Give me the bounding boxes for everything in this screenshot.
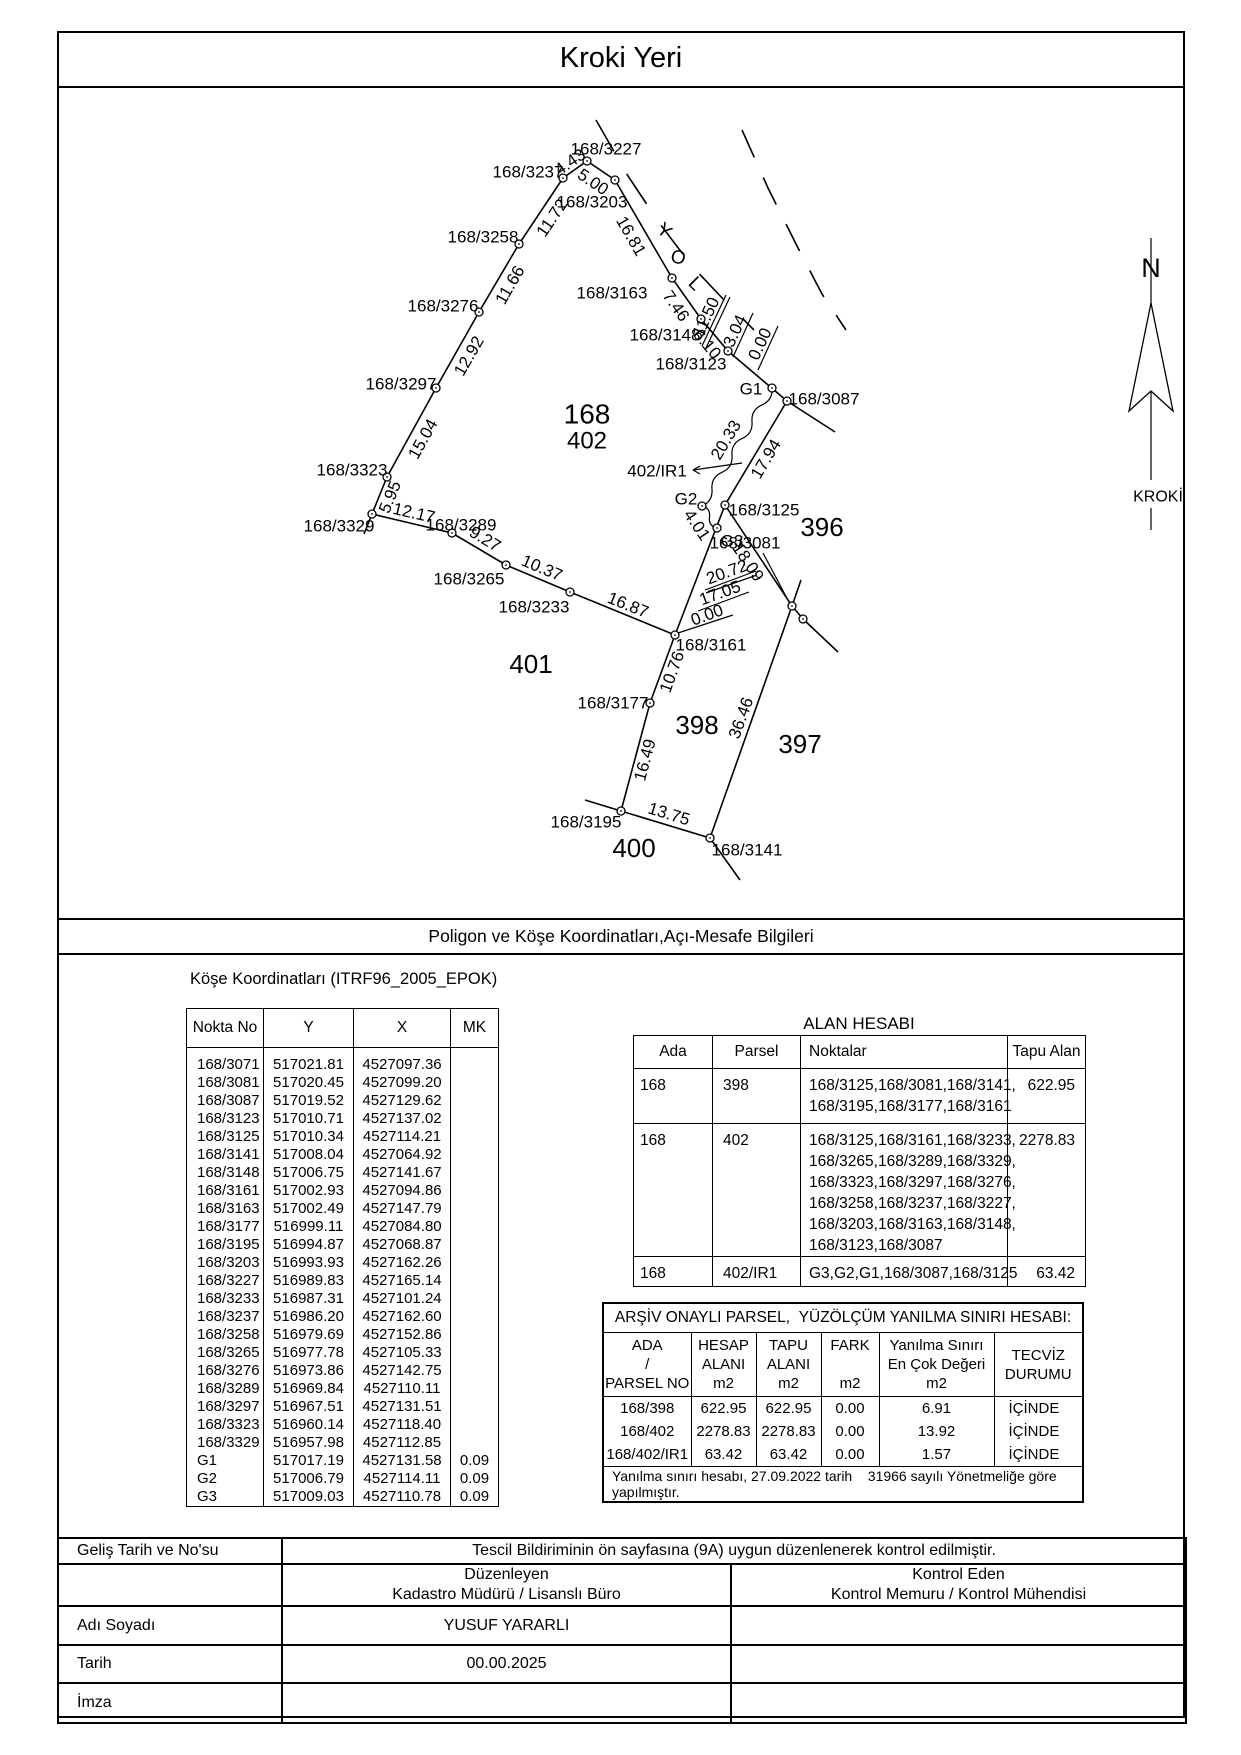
cell: 516986.20 [264,1308,354,1326]
cell: 4527118.40 [354,1416,451,1434]
cell: 517021.81 [264,1048,354,1075]
cell: 4527101.24 [354,1290,451,1308]
cell: 398 [713,1069,801,1124]
table-row: 168/3297516967.514527131.51 [187,1398,499,1416]
table-row: 168402168/3125,168/3161,168/3233,168/326… [634,1124,1086,1257]
cell: 4527064.92 [354,1146,451,1164]
boundary-extension [803,619,838,652]
imza-value [282,1683,731,1723]
coord-table-caption: Köşe Koordinatları (ITRF96_2005_EPOK) [190,970,497,989]
cell: 4527142.75 [354,1362,451,1380]
cell [451,1326,499,1344]
duzenleyen-line2: Kadastro Müdürü / Lisanslı Büro [283,1585,730,1605]
point-label: 168/3258 [448,228,519,247]
kontrol-line2: Kontrol Memuru / Kontrol Mühendisi [732,1585,1185,1605]
cell: 516973.86 [264,1362,354,1380]
cell: 4527131.51 [354,1398,451,1416]
col-noktalar: Noktalar [801,1036,1008,1069]
road-label-letter: O [668,246,688,270]
distance-label: 0.00 [688,600,726,629]
table-row: İmza [58,1683,1186,1723]
distance-label: 16.87 [605,588,652,622]
col-mk: MK [451,1009,499,1048]
cell: 0.09 [451,1452,499,1470]
survey-point-center [709,837,711,839]
table-row: 168/3227516989.834527165.14 [187,1272,499,1290]
cell: 402/IR1 [713,1257,801,1287]
cell: 168/3087 [187,1092,264,1110]
cell: 63.42 [756,1443,821,1467]
cell: 517006.79 [264,1470,354,1488]
parcel-number-label: 401 [509,649,552,679]
cell [451,1398,499,1416]
distance-label: 0.00 [744,325,775,363]
cell: 168/3329 [187,1434,264,1452]
signature-table: Geliş Tarih ve No'su Tescil Bildiriminin… [57,1537,1187,1724]
cell: 168/3203 [187,1254,264,1272]
cell: 168/3148 [187,1164,264,1182]
table-row: 168/398622.95622.950.006.91İÇİNDE [603,1397,1083,1421]
cell: 517017.19 [264,1452,354,1470]
cell: 0.00 [821,1443,879,1467]
alan-hesabi-header: Ada Parsel Noktalar Tapu Alan [634,1036,1086,1069]
column-header: Yanılma SınırıEn Çok Değerim2 [879,1333,994,1397]
distance-label: 3.04 [719,312,750,350]
adi-soyadi-label: Adı Soyadı [58,1606,282,1645]
cell: 13.92 [879,1420,994,1443]
label-leader-line [763,553,789,602]
table-row: 168/3081517020.454527099.20 [187,1074,499,1092]
table-row: 168/3141517008.044527064.92 [187,1146,499,1164]
table-row: 168/402/IR163.4263.420.001.57İÇİNDE [603,1443,1083,1467]
cell [451,1128,499,1146]
table-row: G2517006.794527114.110.09 [187,1470,499,1488]
parcel-number-label: 396 [800,512,843,542]
cell: G2 [187,1470,264,1488]
table-row: 168/3237516986.204527162.60 [187,1308,499,1326]
distance-label: 7.46 [659,287,694,325]
point-label: 168/3087 [789,390,860,409]
cell [451,1272,499,1290]
cell: 168/402 [603,1420,691,1443]
table-row: 168/3323516960.144527118.40 [187,1416,499,1434]
cell: 4527105.33 [354,1344,451,1362]
cell: G3,G2,G1,168/3087,168/3125 [801,1257,1008,1287]
point-label: 168/3177 [578,694,649,713]
cell: 168 [634,1069,713,1124]
distance-label: 16.81 [612,213,650,259]
cell: 622.95 [691,1397,756,1421]
distance-label: 11.66 [491,262,528,307]
point-label: 168/3323 [317,461,388,480]
table-row: 168/3276516973.864527142.75 [187,1362,499,1380]
cell: 168/3265 [187,1344,264,1362]
cell: 4527084.80 [354,1218,451,1236]
point-label: 168/3297 [366,375,437,394]
cell: 4527110.78 [354,1488,451,1507]
cell [451,1416,499,1434]
table-row: 168/3125517010.344527114.21 [187,1128,499,1146]
parcel-boundary [372,514,675,635]
alan-hesabi-title: ALAN HESABI [633,1014,1085,1034]
table-row: 168/4022278.832278.830.0013.92İÇİNDE [603,1420,1083,1443]
table-row: 168/3123517010.714527137.02 [187,1110,499,1128]
cell: 4527114.11 [354,1470,451,1488]
cell: 517010.71 [264,1110,354,1128]
cell: 517020.45 [264,1074,354,1092]
cell: 4527099.20 [354,1074,451,1092]
empty-cell [731,1645,1186,1683]
cell: 516999.11 [264,1218,354,1236]
survey-point-center [716,527,718,529]
cell: 168/398 [603,1397,691,1421]
col-ada: Ada [634,1036,713,1069]
cell: 168/3323 [187,1416,264,1434]
cell: 168/3195 [187,1236,264,1254]
parcel-number-label: 398 [675,710,718,740]
point-label: 168/3125 [729,501,800,520]
column-header: FARKm2 [821,1333,879,1397]
north-label: N [1141,253,1161,283]
point-label: 168/3276 [408,297,479,316]
empty-cell [731,1683,1186,1723]
table-row: Tarih 00.00.2025 [58,1645,1186,1683]
survey-point-center [771,387,773,389]
point-label: G1 [740,380,763,399]
cell: 0.09 [451,1488,499,1507]
cell: 2278.83 [756,1420,821,1443]
cell: 168/3161 [187,1182,264,1200]
table-row: 168/3163517002.494527147.79 [187,1200,499,1218]
cell: 4527129.62 [354,1092,451,1110]
cell: 0.09 [451,1470,499,1488]
column-header: HESAPALANIm2 [691,1333,756,1397]
empty-cell [731,1606,1186,1645]
cell: 516960.14 [264,1416,354,1434]
table-row: 168402/IR1G3,G2,G1,168/3087,168/312563.4… [634,1257,1086,1287]
coordinate-table-header: Nokta No Y X MK [187,1009,499,1048]
cell [451,1308,499,1326]
cell: İÇİNDE [994,1397,1083,1421]
cadastral-sketch: 168/3227168/3237168/3203168/3258168/3163… [57,88,1185,918]
cell: 168/3289 [187,1380,264,1398]
cell: 516969.84 [264,1380,354,1398]
survey-point-center [671,277,673,279]
col-y: Y [264,1009,354,1048]
table-row: 168398168/3125,168/3081,168/3141,168/319… [634,1069,1086,1124]
col-x: X [354,1009,451,1048]
cell: 4527137.02 [354,1110,451,1128]
cell: 168/3125,168/3081,168/3141,168/3195,168/… [801,1069,1008,1124]
cell: 0.00 [821,1397,879,1421]
arsiv-header-row: ADA/PARSEL NOHESAPALANIm2TAPUALANIm2FARK… [603,1333,1083,1397]
cell: 0.00 [821,1420,879,1443]
cell: 517009.03 [264,1488,354,1507]
cell [451,1380,499,1398]
point-label: 168/3195 [551,813,622,832]
col-tapu-alan: Tapu Alan [1008,1036,1086,1069]
cell: 517002.93 [264,1182,354,1200]
distance-label: 12.92 [450,333,488,379]
parcel-number-label: 168 [564,399,611,430]
arsiv-footnote: Yanılma sınırı hesabı, 27.09.2022 tarih … [603,1467,1083,1503]
cell: 168/3276 [187,1362,264,1380]
survey-point-center [371,513,373,515]
gelis-tarih-value: Tescil Bildiriminin ön sayfasına (9A) uy… [282,1538,1186,1564]
cell: İÇİNDE [994,1443,1083,1467]
cell: 4527097.36 [354,1048,451,1075]
table-row: 168/3071517021.814527097.36 [187,1048,499,1075]
cell: 622.95 [756,1397,821,1421]
point-label: 168/3265 [434,570,505,589]
cell: 1.57 [879,1443,994,1467]
cell: 168/3123 [187,1110,264,1128]
cell: 63.42 [691,1443,756,1467]
distance-label: 11.72 [533,196,572,241]
table-row: 168/3289516969.844527110.11 [187,1380,499,1398]
cell: 168 [634,1257,713,1287]
arsiv-title-row: ARŞİV ONAYLI PARSEL, YÜZÖLÇÜM YANILMA SI… [603,1303,1083,1333]
distance-label: 15.04 [404,416,441,462]
cell [451,1290,499,1308]
cell: 517010.34 [264,1128,354,1146]
kroki-label: KROKİ [1133,487,1183,506]
column-header: ADA/PARSEL NO [603,1333,691,1397]
table-row: Düzenleyen Kadastro Müdürü / Lisanslı Bü… [58,1564,1186,1606]
cell: 516967.51 [264,1398,354,1416]
cell: 517006.75 [264,1164,354,1182]
table-row: 168/3148517006.754527141.67 [187,1164,499,1182]
cell: 516957.98 [264,1434,354,1452]
cell [451,1182,499,1200]
cell: 516977.78 [264,1344,354,1362]
cell: 168/3177 [187,1218,264,1236]
cell: 63.42 [1008,1257,1086,1287]
table-row: G3517009.034527110.780.09 [187,1488,499,1507]
cell: İÇİNDE [994,1420,1083,1443]
table-row: 168/3258516979.694527152.86 [187,1326,499,1344]
distance-label: 9.27 [466,522,504,555]
cell [451,1200,499,1218]
page-title: Kroki Yeri [560,42,683,75]
section-bar: Poligon ve Köşe Koordinatları,Açı-Mesafe… [57,918,1185,955]
duzenleyen-line1: Düzenleyen [283,1565,730,1585]
cell [451,1048,499,1075]
cell [451,1236,499,1254]
cell: 4527162.60 [354,1308,451,1326]
cell: 517019.52 [264,1092,354,1110]
cell: 4527112.85 [354,1434,451,1452]
cell: 516987.31 [264,1290,354,1308]
cell: 168/3071 [187,1048,264,1075]
cell [451,1344,499,1362]
cell: 168/3297 [187,1398,264,1416]
road-label-letter: L [684,273,706,295]
cell: 4527141.67 [354,1164,451,1182]
cell: 516993.93 [264,1254,354,1272]
cell: 4527162.26 [354,1254,451,1272]
duzenleyen-header: Düzenleyen Kadastro Müdürü / Lisanslı Bü… [282,1564,731,1606]
cell: 168/3258 [187,1326,264,1344]
survey-point-center [802,618,804,620]
kontrol-eden-header: Kontrol Eden Kontrol Memuru / Kontrol Mü… [731,1564,1186,1606]
arsiv-table: ARŞİV ONAYLI PARSEL, YÜZÖLÇÜM YANILMA SI… [602,1302,1084,1503]
cell: 6.91 [879,1397,994,1421]
cell: 4527147.79 [354,1200,451,1218]
cell: 4527114.21 [354,1128,451,1146]
cell [451,1254,499,1272]
cell: 517008.04 [264,1146,354,1164]
cell: G1 [187,1452,264,1470]
parcel-number-label: 400 [612,833,655,863]
adi-soyadi-value: YUSUF YARARLI [282,1606,731,1645]
table-row: 168/3195516994.874527068.87 [187,1236,499,1254]
empty-cell [58,1564,282,1606]
survey-point-center [505,564,507,566]
survey-point-center [701,505,703,507]
col-nokta-no: Nokta No [187,1009,264,1048]
cell: 516989.83 [264,1272,354,1290]
cell: 516979.69 [264,1326,354,1344]
table-row: 168/3203516993.934527162.26 [187,1254,499,1272]
cell: 2278.83 [691,1420,756,1443]
survey-point-center [724,504,726,506]
survey-point-center [649,702,651,704]
table-row: 168/3177516999.114527084.80 [187,1218,499,1236]
cell: 516994.87 [264,1236,354,1254]
road-edge-dashed [742,130,846,330]
section-title: Poligon ve Köşe Koordinatları,Açı-Mesafe… [428,926,813,947]
table-row: G1517017.194527131.580.09 [187,1452,499,1470]
table-row: 168/3233516987.314527101.24 [187,1290,499,1308]
cell: 168/402/IR1 [603,1443,691,1467]
gelis-tarih-label: Geliş Tarih ve No'su [58,1538,282,1564]
cell: 4527131.58 [354,1452,451,1470]
cell: 168/3233 [187,1290,264,1308]
label-leader-line [693,470,700,474]
table-row: 168/3265516977.784527105.33 [187,1344,499,1362]
parcel-number-label: 397 [778,729,821,759]
alan-hesabi-table: Ada Parsel Noktalar Tapu Alan 168398168/… [633,1035,1086,1287]
cell [451,1434,499,1452]
cell: 168/3125,168/3161,168/3233,168/3265,168/… [801,1124,1008,1257]
table-row: 168/3329516957.984527112.85 [187,1434,499,1452]
cell: 168/3141 [187,1146,264,1164]
distance-label: 16.49 [630,737,659,783]
cell: 402 [713,1124,801,1257]
parcel-number-label: 402 [567,428,607,455]
cell: 4527165.14 [354,1272,451,1290]
cell [451,1110,499,1128]
cell: 4527068.87 [354,1236,451,1254]
survey-point-center [614,179,616,181]
tarih-value: 00.00.2025 [282,1645,731,1683]
cell: 4527094.86 [354,1182,451,1200]
cell: 4527152.86 [354,1326,451,1344]
coordinate-table: Nokta No Y X MK 168/3071517021.814527097… [186,1008,499,1507]
cell: 622.95 [1008,1069,1086,1124]
document-page: Kroki Yeri 168/3227168/3237168/3203168/3… [0,0,1241,1755]
cell: 168 [634,1124,713,1257]
column-header: TAPUALANIm2 [756,1333,821,1397]
boundary-extension [585,800,621,811]
arsiv-title: ARŞİV ONAYLI PARSEL, YÜZÖLÇÜM YANILMA SI… [603,1303,1083,1333]
point-label: 402/IR1 [627,462,687,481]
point-label: 168/3161 [676,636,747,655]
point-label: G2 [675,490,698,509]
cell [451,1092,499,1110]
table-row: Geliş Tarih ve No'su Tescil Bildiriminin… [58,1538,1186,1564]
arsiv-footnote-row: Yanılma sınırı hesabı, 27.09.2022 tarih … [603,1467,1083,1503]
label-leader-line [693,463,742,470]
cell: 168/3125 [187,1128,264,1146]
point-label: 168/3163 [577,284,648,303]
point-label: 168/3233 [499,598,570,617]
cell [451,1362,499,1380]
imza-label: İmza [58,1683,282,1723]
table-row: 168/3087517019.524527129.62 [187,1092,499,1110]
cell: 168/3081 [187,1074,264,1092]
cell [451,1164,499,1182]
point-label: 168/3141 [712,841,783,860]
table-row: Adı Soyadı YUSUF YARARLI [58,1606,1186,1645]
survey-point-center [791,605,793,607]
point-label: 168/3329 [304,517,375,536]
tarih-label: Tarih [58,1645,282,1683]
survey-point-center [569,591,571,593]
survey-point-center [727,350,729,352]
table-row: 168/3161517002.934527094.86 [187,1182,499,1200]
distance-label: 11.50 [689,294,724,339]
cell [451,1146,499,1164]
distance-label: 13.75 [646,799,692,830]
title-bar: Kroki Yeri [57,31,1185,88]
cell: 168/3163 [187,1200,264,1218]
cell: 517002.49 [264,1200,354,1218]
cell: 4527110.11 [354,1380,451,1398]
cell: G3 [187,1488,264,1507]
kontrol-line1: Kontrol Eden [732,1565,1185,1585]
col-parsel: Parsel [713,1036,801,1069]
cell: 168/3227 [187,1272,264,1290]
column-header: TECVİZDURUMU [994,1333,1083,1397]
cell: 168/3237 [187,1308,264,1326]
distance-label: 12.17 [391,499,437,527]
cell [451,1218,499,1236]
cell: 2278.83 [1008,1124,1086,1257]
cell [451,1074,499,1092]
